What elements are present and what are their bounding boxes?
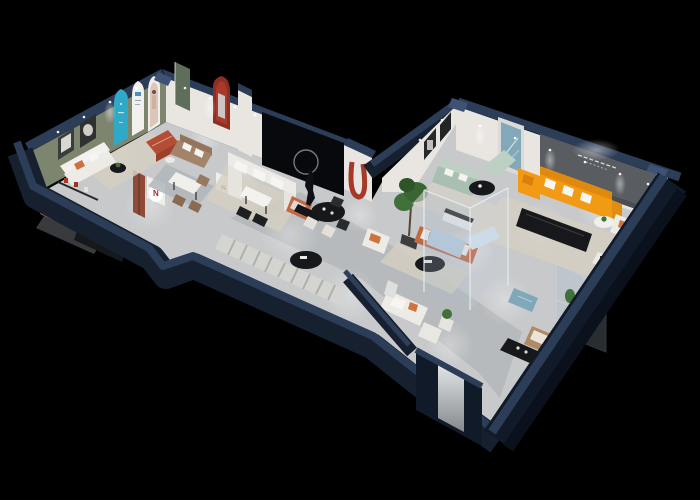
glass-pane-left xyxy=(424,190,470,310)
tableware xyxy=(478,184,482,188)
table-plant xyxy=(116,163,121,168)
arch-logo-mark xyxy=(135,92,141,96)
side-table-white xyxy=(165,157,175,163)
frame-mat xyxy=(427,140,433,150)
arch-logo-text xyxy=(135,104,140,105)
shelf-decor xyxy=(516,346,519,349)
statue-head xyxy=(308,170,313,175)
poster-figure-body xyxy=(152,95,156,109)
glass-meeting-room xyxy=(424,188,508,310)
partition-stub-face xyxy=(238,90,252,157)
arch-logo-text xyxy=(135,100,141,101)
shelf-decor xyxy=(524,350,527,353)
logo-arch-panel xyxy=(132,81,144,136)
round-table-black xyxy=(469,181,495,196)
poster-figure-head xyxy=(152,90,156,94)
teal-arch-panel xyxy=(114,89,128,146)
isometric-floorplan-svg: N N xyxy=(0,0,700,500)
table-plant xyxy=(601,216,606,221)
tableware xyxy=(330,211,333,214)
arch-mirror xyxy=(218,93,225,119)
arch-glyph xyxy=(119,122,123,123)
arch-glyph xyxy=(118,112,124,113)
showroom-render: N N xyxy=(0,0,700,500)
arch-glyph xyxy=(120,103,122,105)
kidney-table xyxy=(290,251,322,269)
plant-foliage xyxy=(399,178,415,192)
shelf-book-red xyxy=(74,182,78,187)
tableware xyxy=(322,207,325,210)
plate-art xyxy=(83,124,93,136)
table-books xyxy=(300,256,307,259)
sage-door xyxy=(175,62,190,111)
shelf-book-red xyxy=(64,178,68,183)
sign-spotlight-glow xyxy=(572,139,620,161)
shelf-book xyxy=(84,187,88,192)
pedestal-plant xyxy=(442,309,452,319)
